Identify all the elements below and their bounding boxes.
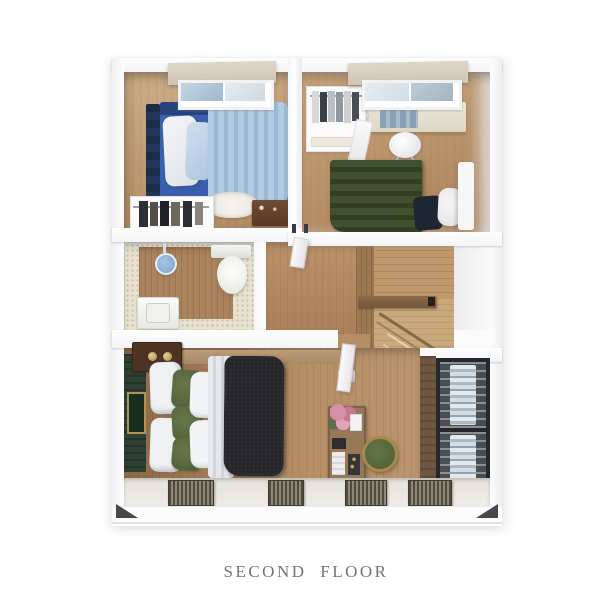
bed-green-duvet <box>330 160 422 232</box>
window-pane <box>181 83 223 101</box>
room-master-bedroom <box>124 348 420 478</box>
wall-divider-top-rooms <box>288 58 302 246</box>
floor-caption: SECOND FLOOR <box>6 562 600 582</box>
bed-frame-white <box>458 162 474 230</box>
vanity-papers <box>332 452 345 475</box>
sink-basin <box>146 303 170 323</box>
hanging-garment <box>344 91 351 123</box>
window-pane <box>411 83 453 101</box>
toilet-bowl <box>217 256 247 294</box>
headboard-navy <box>146 104 160 202</box>
stair-side-wall <box>454 236 490 330</box>
room-hallway <box>266 242 362 334</box>
door-hinge <box>304 224 308 233</box>
balcony-ledge <box>124 478 490 506</box>
hanging-garment <box>160 201 169 226</box>
hanging-garment <box>336 92 343 122</box>
hanging-garment <box>150 202 158 226</box>
photo-frame <box>350 414 362 431</box>
slatted-mat <box>168 480 214 506</box>
closet-section <box>440 362 486 428</box>
wall-left <box>112 58 124 506</box>
slatted-mat <box>408 480 452 506</box>
desk-papers <box>380 108 418 128</box>
wooden-dresser <box>252 200 290 226</box>
window-pane <box>365 83 409 101</box>
gramophone-horn <box>148 352 157 361</box>
wall-bathroom-hall <box>254 242 266 330</box>
hanging-garment <box>352 92 359 121</box>
hanging-garment <box>183 201 192 227</box>
window-left <box>178 80 274 110</box>
sink-vanity <box>137 297 179 329</box>
newel-post <box>428 297 435 306</box>
window-pane <box>225 83 265 101</box>
hanging-garment <box>320 92 327 122</box>
shower-head <box>155 253 177 275</box>
clothes-rack <box>130 196 214 230</box>
gramophone-horn <box>163 352 172 361</box>
wall-mid-right <box>288 232 502 246</box>
hanging-garment <box>195 202 203 225</box>
floorplan-page: SECOND FLOOR <box>0 0 600 600</box>
round-stool <box>362 436 398 472</box>
vanity-dark-tray <box>348 454 360 475</box>
room-bathroom <box>124 242 256 332</box>
slatted-mat <box>345 480 387 506</box>
staircase <box>356 236 454 358</box>
slatted-mat <box>268 480 304 506</box>
hanging-garment <box>139 201 148 227</box>
shower-arm <box>163 243 166 253</box>
stair-beam <box>358 296 436 308</box>
door-hinge <box>292 224 296 233</box>
wall-right <box>490 58 502 506</box>
chair-seat <box>389 132 421 158</box>
bottom-fascia <box>112 506 502 524</box>
blanket-dark <box>223 356 284 477</box>
second-floor-plan <box>112 58 502 526</box>
hanging-clothes <box>450 365 476 425</box>
framed-art <box>127 392 146 434</box>
wall-mid-left <box>112 228 302 242</box>
vanity-shelf <box>328 406 366 482</box>
hanging-garment <box>312 91 319 123</box>
hanging-garment <box>328 91 335 122</box>
vanity-tray <box>332 438 346 449</box>
hanging-garment <box>171 202 180 226</box>
window-right <box>362 80 462 110</box>
